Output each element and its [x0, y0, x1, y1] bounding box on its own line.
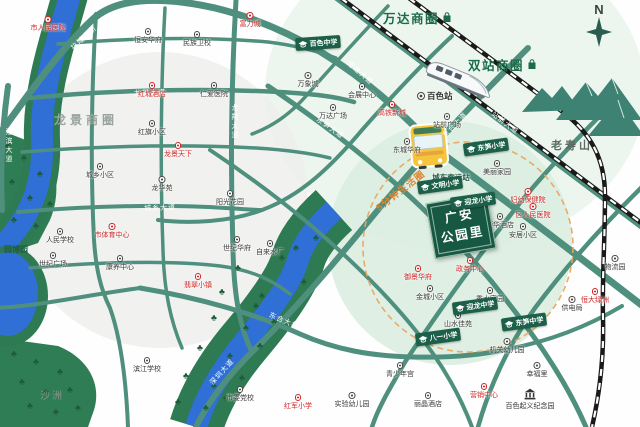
tree-icon: ♣ [211, 314, 217, 323]
poi-label: 市人民医院 [31, 23, 66, 33]
graduation-cap-icon [418, 335, 428, 344]
poi-red: 恒大绿洲 [581, 288, 609, 305]
poi-red: 高铁新城 [378, 101, 406, 118]
poi-label: 物流园 [605, 262, 626, 272]
poi-label: 机关幼儿园 [490, 345, 525, 355]
school-badge-label: 八一小学 [429, 329, 458, 343]
poi-red: 红军小学 [284, 394, 312, 411]
poi-red: 翡翠小镇 [184, 273, 212, 290]
poi-black: 龙华苑 [152, 176, 173, 193]
poi-label: 翡翠小镇 [184, 280, 212, 290]
poi-label: 会展中心 [348, 90, 376, 100]
poi-label: 自来水厂 [256, 247, 284, 257]
poi-black: 人民学校 [46, 228, 74, 245]
map-canvas: 万达商圈 双站商圈 龙景商圈 老寿山 沙洲 园博园 N 百色站 城东客运站 5分… [0, 0, 640, 427]
tree-icon: ♣ [11, 350, 17, 359]
tree-icon: ♣ [175, 398, 181, 407]
compass: N [586, 2, 612, 52]
memorial-badge: 百色起义纪念园 [506, 388, 555, 411]
poi-black: 实验幼儿园 [335, 392, 370, 409]
poi-black: 幸福里 [527, 362, 548, 379]
tree-icon: ♣ [301, 278, 307, 287]
poi-label: 区人民医院 [516, 210, 551, 220]
poi-label: 恒大绿洲 [581, 295, 609, 305]
station-marker-icon [417, 92, 425, 100]
poi-label: 实验幼儿园 [335, 399, 370, 409]
graduation-cap-icon [298, 40, 308, 49]
memorial-label: 百色起义纪念园 [506, 401, 555, 411]
graduation-cap-icon [420, 183, 430, 192]
tree-icon: ♣ [33, 358, 39, 367]
poi-label: 世纪广场 [39, 259, 67, 269]
poi-black: 红旗小区 [138, 120, 166, 137]
poi-black: 仁爱医院 [200, 82, 228, 99]
poi-label: 市委党校 [226, 393, 254, 403]
graduation-cap-icon [504, 320, 514, 329]
business-circle-text: 双站商圈 [468, 55, 524, 74]
poi-red: 政务中心 [456, 257, 484, 274]
business-circle-label-shuangzhan: 双站商圈 [468, 55, 537, 74]
shopping-bag-icon [442, 12, 452, 23]
poi-label: 红军小学 [284, 401, 312, 411]
poi-label: 高铁新城 [378, 108, 406, 118]
tree-icon: ♣ [257, 342, 263, 351]
road-name-label: 城乡大道 [144, 202, 176, 213]
poi-red: 市体育中心 [95, 223, 130, 240]
business-circle-label-longjing: 龙景商圈 [54, 111, 118, 128]
poi-label: 御景华府 [404, 272, 432, 282]
poi-black: 康养中心 [106, 255, 134, 272]
business-circle-text: 万达商圈 [383, 8, 439, 27]
tree-icon: ♣ [11, 216, 17, 225]
poi-black: 市委党校 [226, 386, 254, 403]
poi-black: 世纪华府 [223, 236, 251, 253]
poi-label: 站前广场 [433, 120, 461, 130]
shopping-bag-icon [527, 59, 537, 70]
poi-label: 红城酒店 [138, 89, 166, 99]
poi-black: 阳光花园 [216, 190, 244, 207]
poi-label: 滨江学校 [133, 364, 161, 374]
school-badge-label: 迎龙中学 [466, 298, 495, 312]
poi-black: 物流园 [605, 255, 626, 272]
poi-label: 仁爱医院 [200, 89, 228, 99]
tree-icon: ♣ [33, 222, 39, 231]
poi-red: 红城酒店 [138, 82, 166, 99]
expo-park-label: 园博园 [4, 244, 28, 255]
poi-label: 康养中心 [106, 262, 134, 272]
poi-label: 世纪华府 [223, 243, 251, 253]
poi-red: 营销中心 [470, 383, 498, 400]
poi-black: 恒安华府 [134, 28, 162, 45]
poi-red: 富力城 [240, 12, 261, 29]
graduation-cap-icon [455, 304, 465, 313]
poi-label: 红旗小区 [138, 127, 166, 137]
mountain-label: 老寿山 [551, 137, 593, 153]
poi-label: 万达广场 [319, 111, 347, 121]
tree-icon: ♣ [21, 154, 27, 163]
poi-black: 万达广场 [319, 104, 347, 121]
compass-north-label: N [586, 2, 612, 17]
poi-black: 站前广场 [433, 113, 461, 130]
poi-label: 东城华府 [393, 145, 421, 155]
poi-label: 民族卫校 [183, 38, 211, 48]
rail-station-label: 百色站 [417, 90, 453, 102]
poi-label: 恒安华府 [134, 35, 162, 45]
tree-icon: ♣ [183, 372, 189, 381]
poi-black: 会展中心 [348, 83, 376, 100]
poi-red: 龙景天下 [164, 142, 192, 159]
tree-icon: ♣ [75, 404, 81, 413]
station-name: 百色站 [427, 90, 453, 102]
poi-label: 美丽家园 [483, 167, 511, 177]
tree-icon: ♣ [219, 288, 225, 297]
graduation-cap-icon [466, 145, 476, 154]
poi-black: 机关幼儿园 [490, 338, 525, 355]
poi-label: 丽晶酒店 [414, 399, 442, 409]
poi-label: 阳光花园 [216, 197, 244, 207]
business-circle-label-wanda: 万达商圈 [383, 8, 452, 27]
tree-icon: ♣ [259, 292, 265, 301]
museum-icon [524, 388, 537, 400]
poi-label: 市体育中心 [95, 230, 130, 240]
tree-icon: ♣ [27, 402, 33, 411]
graduation-cap-icon [453, 199, 463, 208]
island-label: 沙洲 [40, 387, 64, 402]
poi-red: 区人民医院 [516, 203, 551, 220]
tree-icon: ♣ [53, 408, 59, 417]
poi-black: 东城华府 [393, 138, 421, 155]
poi-black: 供电局 [562, 296, 583, 313]
poi-black: 金城小区 [416, 285, 444, 302]
poi-label: 幸福里 [527, 369, 548, 379]
poi-label: 龙景天下 [164, 149, 192, 159]
tree-icon: ♣ [203, 404, 209, 413]
poi-black: 滨江学校 [133, 357, 161, 374]
poi-label: 金城小区 [416, 292, 444, 302]
poi-black: 城乡小区 [86, 163, 114, 180]
poi-black: 民族卫校 [183, 31, 211, 48]
poi-red: 市人民医院 [31, 16, 66, 33]
poi-black: 美丽家园 [483, 160, 511, 177]
tree-icon: ♣ [9, 178, 15, 187]
tree-icon: ♣ [47, 200, 53, 209]
tree-icon: ♣ [27, 194, 33, 203]
poi-label: 政务中心 [456, 264, 484, 274]
poi-label: 安居小区 [509, 230, 537, 240]
school-badge-label: 文明小学 [431, 177, 460, 191]
tree-icon: ♣ [67, 386, 73, 395]
poi-black: 世纪广场 [39, 252, 67, 269]
tree-icon: ♣ [197, 344, 203, 353]
tree-icon: ♣ [243, 324, 249, 333]
poi-label: 营销中心 [470, 390, 498, 400]
road-name-label: 龙翔大道 [229, 104, 239, 140]
tree-icon: ♣ [235, 264, 241, 273]
tree-icon: ♣ [293, 244, 299, 253]
tree-icon: ♣ [313, 234, 319, 243]
poi-label: 供电局 [562, 303, 583, 313]
tree-icon: ♣ [57, 368, 63, 377]
school-badge-label: 百色中学 [309, 37, 338, 49]
tree-icon: ♣ [19, 378, 25, 387]
poi-label: 青少年宫 [386, 369, 414, 379]
tree-icon: ♣ [37, 170, 43, 179]
poi-label: 富力城 [240, 19, 261, 29]
poi-label: 万象城 [298, 79, 319, 89]
poi-label: 龙华苑 [152, 183, 173, 193]
school-badge-label: 迎龙小学 [464, 193, 493, 207]
school-badge-label: 东笋中学 [515, 314, 544, 328]
poi-red: 御景华府 [404, 265, 432, 282]
poi-label: 城乡小区 [86, 170, 114, 180]
tree-icon: ♣ [239, 374, 245, 383]
poi-black: 安居小区 [509, 223, 537, 240]
road-name-label: 江滨大道 [3, 128, 13, 164]
poi-label: 人民学校 [46, 235, 74, 245]
school-badge-label: 东笋小学 [477, 139, 506, 153]
poi-black: 丽晶酒店 [414, 392, 442, 409]
poi-black: 自来水厂 [256, 240, 284, 257]
compass-star-icon [586, 17, 612, 47]
poi-black: 青少年宫 [386, 362, 414, 379]
poi-black: 万象城 [298, 72, 319, 89]
tree-icon: ♣ [253, 302, 259, 311]
